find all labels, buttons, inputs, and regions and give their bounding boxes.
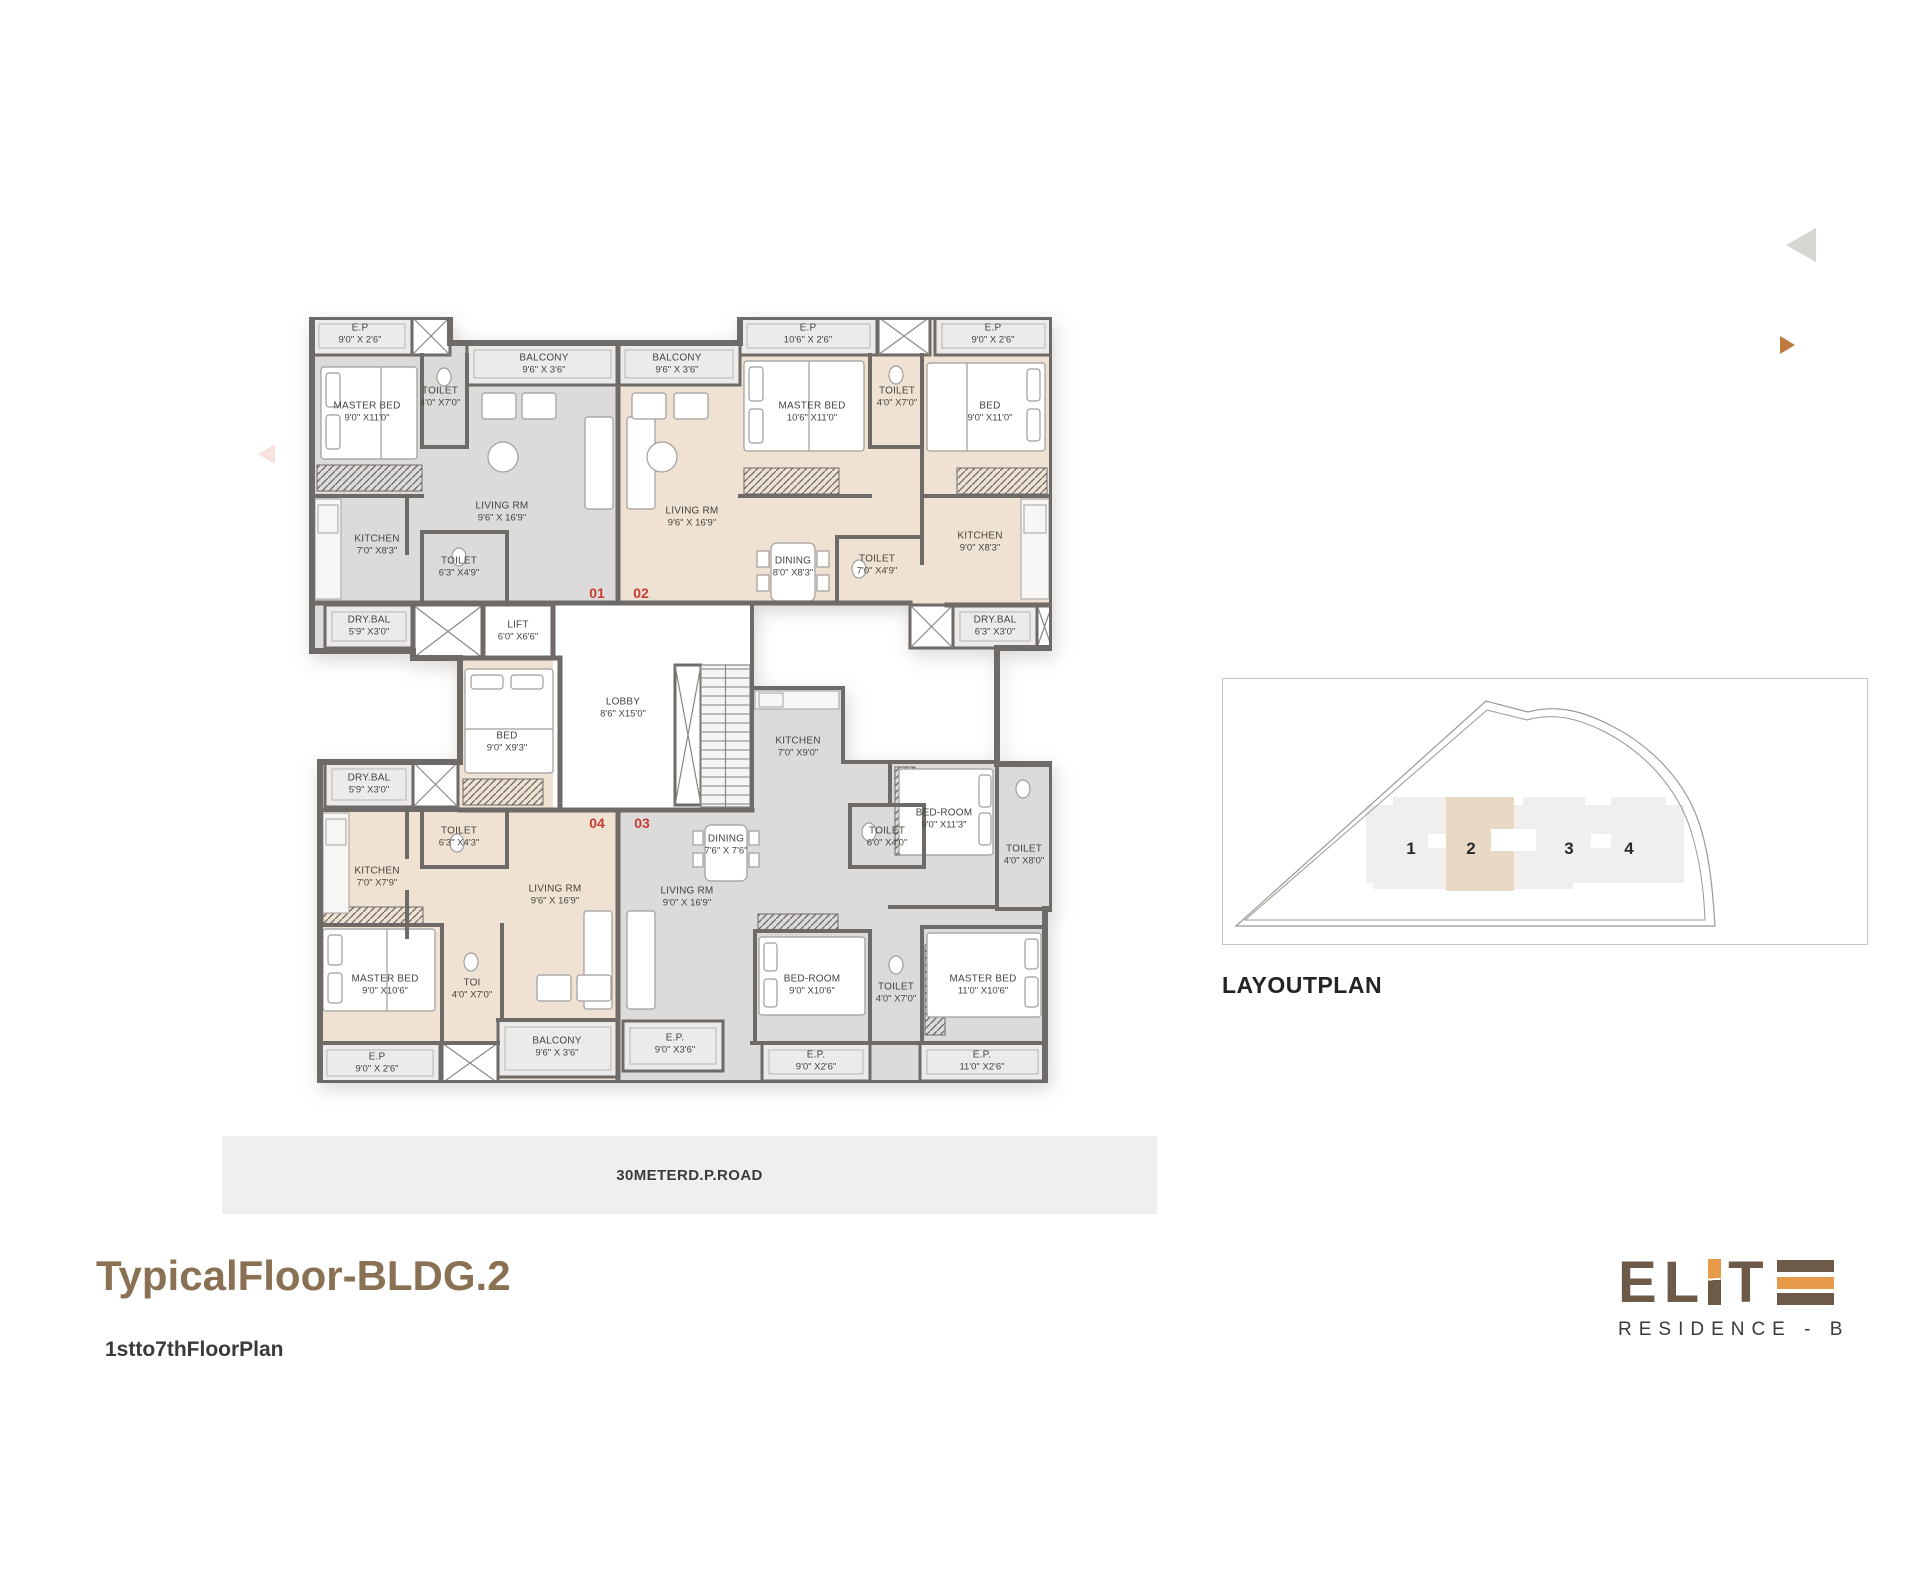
- logo-letter-T: T: [1728, 1261, 1763, 1305]
- floorplan-drawing: [307, 317, 1052, 1083]
- watermark-arrow-icon: [258, 444, 275, 464]
- layoutplan-heading: LAYOUTPLAN: [1222, 972, 1382, 999]
- road-label: 30METERD.P.ROAD: [616, 1167, 763, 1184]
- layout-block-2: 2: [1466, 839, 1475, 859]
- page-subtitle: 1stto7thFloorPlan: [105, 1338, 284, 1362]
- page-title: TypicalFloor-BLDG.2: [96, 1252, 511, 1300]
- brand-logo-row: ELT: [1618, 1258, 1848, 1305]
- nav-arrow-small-icon[interactable]: [1780, 336, 1795, 354]
- page: E.P9'0" X 2'6"MASTER BED9'0" X11'0"TOILE…: [0, 0, 1921, 1579]
- layout-plan-panel: 1234: [1222, 678, 1868, 945]
- logo-letter-L: L: [1664, 1261, 1699, 1305]
- brand-logo-residence: RESIDENCE - B: [1618, 1319, 1848, 1341]
- logo-letter-I-bar: [1708, 1259, 1721, 1305]
- floor-plan: E.P9'0" X 2'6"MASTER BED9'0" X11'0"TOILE…: [307, 317, 1052, 1083]
- layoutplan-block-numbers: 1234: [1223, 679, 1867, 944]
- brand-logo: ELT RESIDENCE - B: [1618, 1258, 1848, 1341]
- layout-block-1: 1: [1406, 839, 1415, 859]
- nav-arrow-icon[interactable]: [1786, 228, 1816, 262]
- road-label-bar: 30METERD.P.ROAD: [222, 1136, 1157, 1214]
- logo-letter-E: E: [1618, 1261, 1657, 1305]
- layout-block-4: 4: [1624, 839, 1633, 859]
- logo-letter-E-bars: [1777, 1260, 1834, 1305]
- layout-block-3: 3: [1564, 839, 1573, 859]
